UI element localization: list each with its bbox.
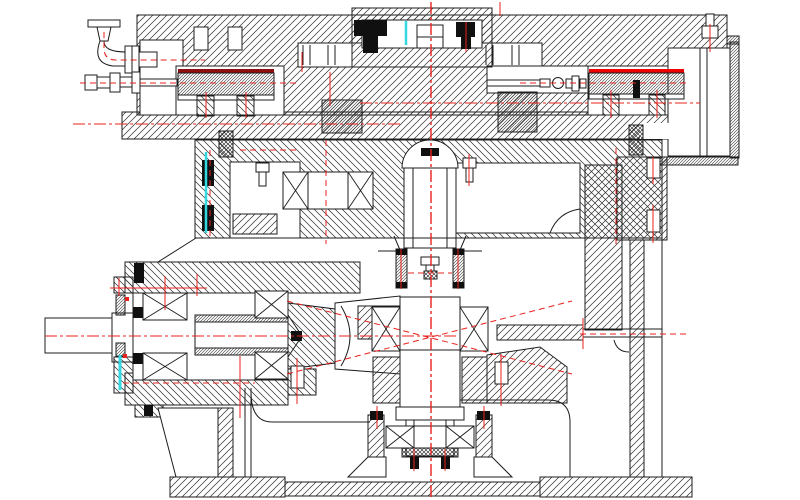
right-column	[630, 240, 644, 477]
seal-spring	[116, 295, 125, 315]
worm-gap	[178, 95, 274, 100]
gear-teeth-strip	[233, 214, 277, 234]
gear-flange	[497, 325, 583, 340]
bolt	[259, 172, 266, 186]
right-shell-cavity	[668, 48, 730, 156]
right-window	[455, 163, 580, 233]
lug-notch	[228, 27, 242, 50]
bearing	[348, 172, 373, 209]
gear-section	[373, 357, 400, 403]
bearing	[446, 426, 474, 448]
cap-flange-bottom	[114, 357, 133, 393]
brake-block-left	[322, 100, 362, 133]
worm-block-left	[178, 73, 274, 95]
bearing	[143, 353, 187, 380]
worm-red-band-left	[178, 69, 274, 73]
hub-bore	[308, 172, 348, 209]
outer-shell-flange	[658, 157, 738, 165]
gear-hub	[400, 350, 460, 407]
bearing	[255, 352, 288, 379]
ring-black	[133, 353, 143, 364]
locknut	[402, 448, 458, 457]
bolt	[202, 160, 214, 186]
bolt	[202, 205, 214, 231]
bearing	[386, 426, 414, 448]
right-underside-gap	[640, 123, 727, 139]
base-left	[170, 477, 285, 497]
base-mid	[285, 482, 540, 496]
lug-notch	[194, 27, 208, 50]
red-dot	[125, 297, 129, 301]
gear-section	[462, 357, 487, 403]
brake-block-right	[498, 92, 537, 132]
bolt	[134, 263, 144, 283]
handwheel	[88, 20, 120, 27]
ring-black	[133, 307, 143, 318]
spindle-mid	[400, 297, 460, 350]
outer-shell-top	[727, 36, 739, 44]
coupling-center	[426, 265, 434, 271]
bolt	[144, 405, 153, 416]
bearing	[283, 172, 308, 209]
outer-shell-wall	[730, 42, 739, 158]
coupling-center	[421, 257, 439, 265]
spindle-upper	[404, 168, 456, 248]
fitting	[120, 77, 132, 87]
cap-bolt-shank	[363, 36, 378, 53]
cap-bolt-head	[354, 20, 387, 36]
base-right	[540, 477, 692, 497]
dome-cap	[421, 148, 439, 156]
leg-column	[218, 408, 233, 477]
drawing-page	[0, 0, 800, 500]
cap-flange-top	[114, 277, 133, 293]
worm-red-band-right	[589, 69, 684, 73]
bolt	[256, 163, 269, 172]
red-dot	[123, 354, 127, 358]
bearing-spacer	[414, 426, 446, 448]
spindle-foot	[396, 407, 464, 420]
bearing	[255, 291, 288, 318]
technical-drawing-canvas	[0, 0, 800, 500]
